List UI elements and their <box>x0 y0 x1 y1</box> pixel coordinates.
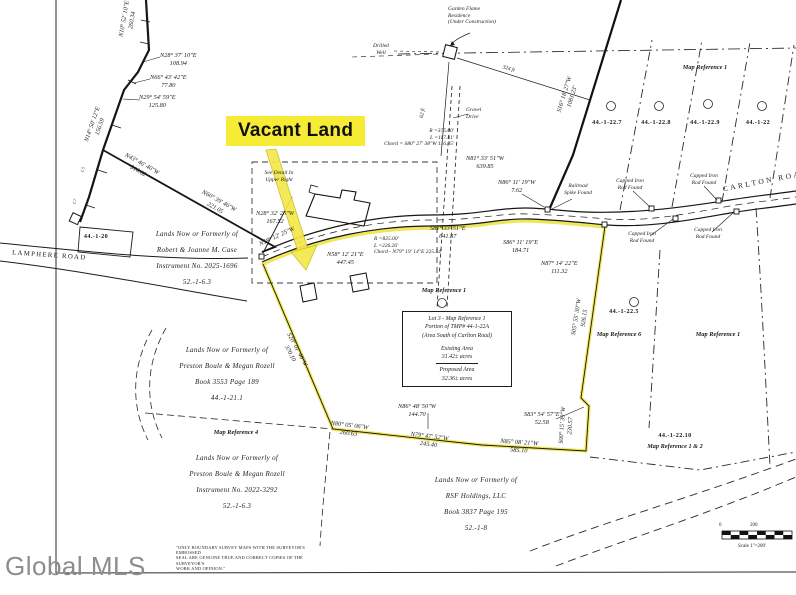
bearing-n5812: N58° 12' 21"E447.45 <box>327 251 364 266</box>
railroad-spike-label: RailroadSpike Found <box>556 183 600 196</box>
map-ref-center: Map Reference 1 <box>404 287 484 295</box>
bearing-n2832: N28° 32' 25"W167.52 <box>256 210 294 225</box>
map-ref-right-mid: Map Reference 1 <box>678 331 758 339</box>
bearing-s8611: S86° 11' 19"E184.71 <box>503 239 538 254</box>
map-ref-4: Map Reference 4 <box>196 429 276 437</box>
scale-text: Scale 1"=200' <box>738 543 766 551</box>
box-divider <box>436 363 478 364</box>
lot-44-1-20: 44.-1-20 <box>74 233 118 241</box>
capped-iron-label-1: Capped IronRod Found <box>610 178 650 191</box>
bearing-n8611: N86° 11' 19"W7.62 <box>498 179 536 194</box>
bearing-n6643: N66° 43' 42"E77.80 <box>150 74 187 89</box>
bearing-s8354: S83° 54' 57"E52.58 <box>524 411 560 426</box>
bearing-rot-bot3: N85° 08' 21"W585.10 <box>500 438 539 456</box>
bearing-n8648: N86° 48' 50"W144.70 <box>398 403 436 418</box>
lot3-info-box: Lot 3 - Map Reference 1 Portion of TMP# … <box>402 311 512 387</box>
surveyor-disclaimer: "ONLY BOUNDARY SURVEY MAPS WITH THE SURV… <box>176 545 306 571</box>
scale-zero: 0 <box>719 522 722 530</box>
lot-44-1-22-8: 44.-1-22.8 <box>633 119 679 127</box>
mls-watermark: Global MLS <box>5 551 146 582</box>
garden-flame-label: Garden Flame Residence (Under Constructi… <box>448 6 496 26</box>
capped-iron-label-4: Capped IronRod Found <box>688 227 728 240</box>
map-ref-top-right: Map Reference 1 <box>660 64 750 72</box>
lot-44-1-22-5: 44.-1-22.5 <box>596 308 652 316</box>
north-road <box>69 0 150 225</box>
vacant-land-annotation: Vacant Land <box>226 116 365 146</box>
survey-map-image: Vacant Land Global MLS CARLTON ROAD LAMP… <box>0 0 796 595</box>
bearing-n2954: N29° 54' 59"E125.80 <box>139 94 176 109</box>
bearing-n8133: N81° 33' 51"W639.85 <box>466 155 504 170</box>
bearing-n8714: N87° 14' 22"E111.32 <box>541 260 578 275</box>
lot-44-1-22-9: 44.-1-22.9 <box>682 119 728 127</box>
curve-data-2: R =825.00' L =226.26' Chord - N79° 19' 1… <box>374 236 504 256</box>
capped-iron-label-3: Capped IronRod Found <box>622 231 662 244</box>
map-ref-6: Map Reference 6 <box>584 331 654 339</box>
drilled-well-label: DrilledWell <box>368 43 394 56</box>
map-ref-1and2: Map Reference 1 & 2 <box>630 443 720 451</box>
parcel-rsf: Lands Now or Formerly of RSF Holdings, L… <box>392 472 560 536</box>
north-boundary-dashline <box>352 48 796 57</box>
scale-200: 200 <box>750 522 758 530</box>
capped-iron-label-2: Capped IronRod Found <box>684 173 724 186</box>
parcel-boule-south: Lands Now or Formerly of Preston Boule &… <box>148 450 326 514</box>
lot-44-1-22: 44.-1-22 <box>736 119 780 127</box>
gravel-drive-label: GravelDrive <box>466 107 481 120</box>
parcel-boule-north: Lands Now or Formerly of Preston Boule &… <box>138 342 316 406</box>
scale-bar <box>722 531 792 539</box>
gravel-drive <box>437 86 468 308</box>
lot-44-1-22-10: 44.-1-22.10 <box>630 432 720 440</box>
lot-44-1-22-7: 44.-1-22.7 <box>584 119 630 127</box>
see-detail-note: See Detail InUpper Right <box>258 170 300 183</box>
bearing-n2837: N28° 37' 10"E108.94 <box>160 52 197 67</box>
bearing-rot-vert: S00° 15' 39"W230.57 <box>558 407 576 445</box>
parcel-case: Lands Now or Formerly of Robert & Joanne… <box>112 226 282 290</box>
